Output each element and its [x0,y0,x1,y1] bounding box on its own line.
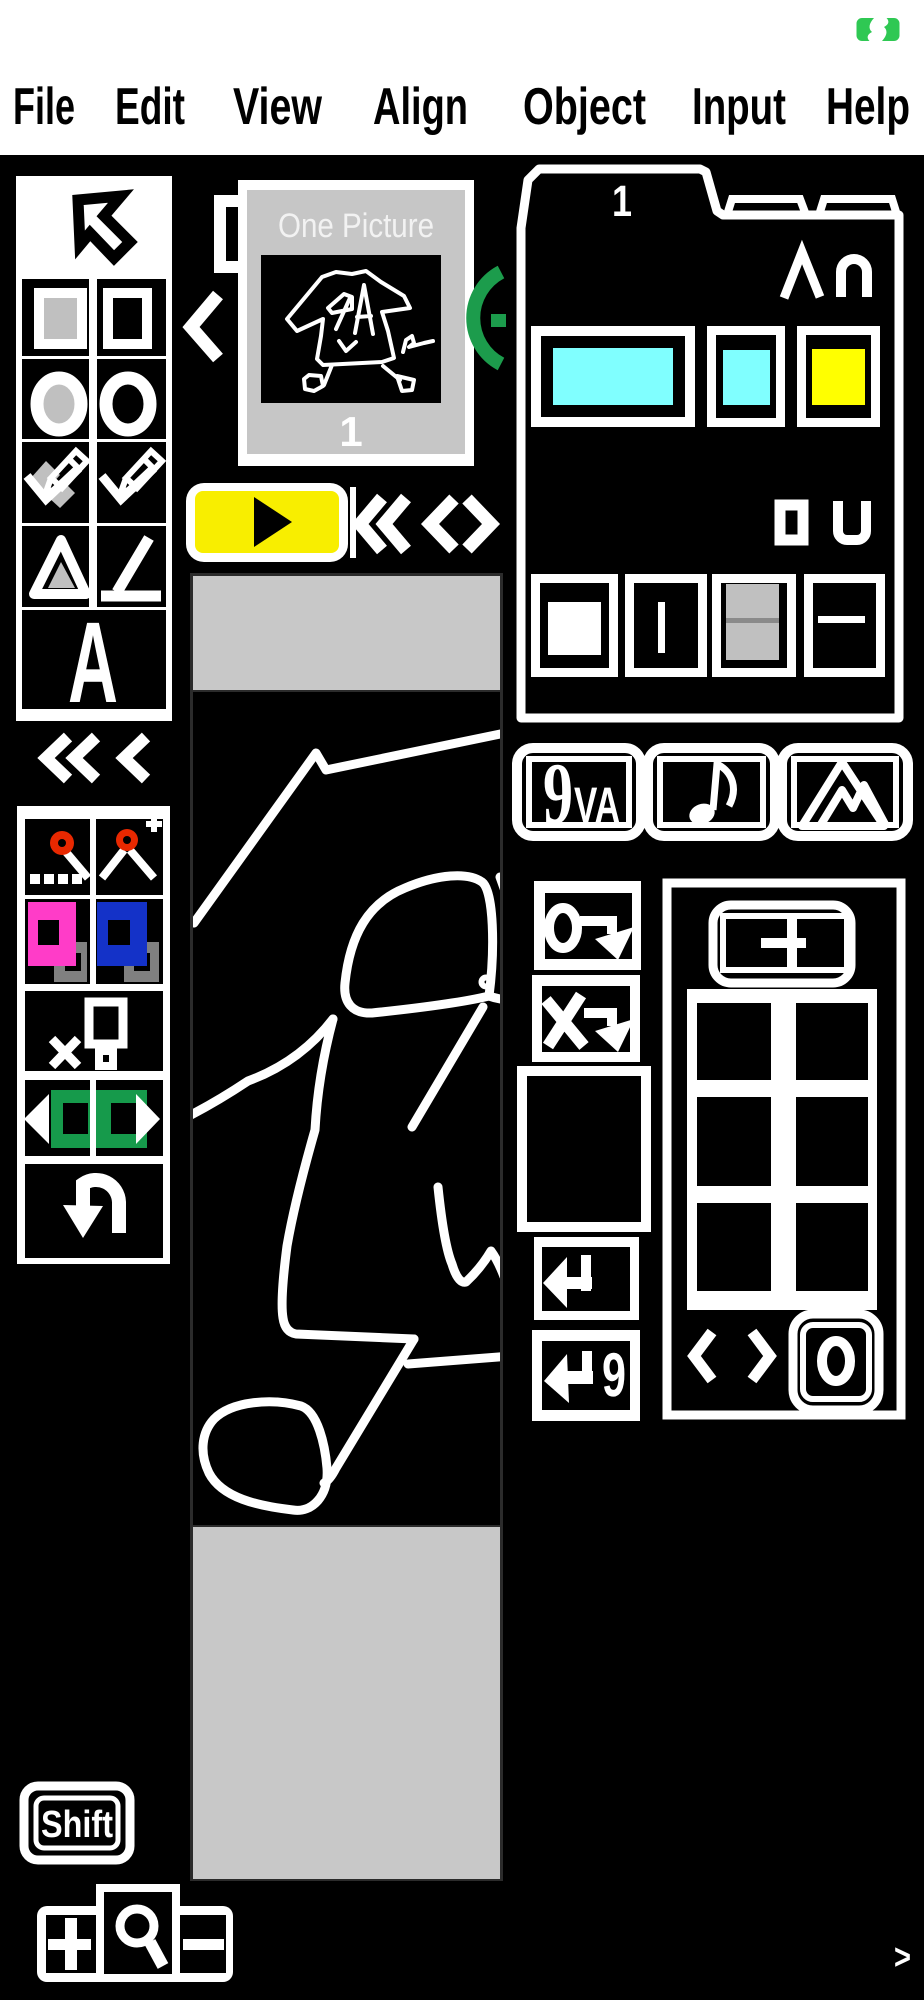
svg-text:Help: Help [826,78,910,136]
svg-text:>: > [894,1936,911,1977]
svg-text:VA: VA [574,777,620,833]
svg-text:One Picture: One Picture [278,207,434,245]
svg-text:Input: Input [692,78,786,136]
svg-text:Shift: Shift [41,1804,113,1846]
svg-text:1: 1 [339,408,362,455]
svg-text:1: 1 [612,177,632,226]
svg-text:A: A [68,599,118,727]
svg-text:View: View [233,78,322,136]
svg-text:9: 9 [543,746,573,843]
svg-text:Align: Align [373,78,468,136]
svg-text:File: File [13,78,75,136]
svg-text:Object: Object [523,78,646,136]
svg-text:9: 9 [602,1341,626,1410]
svg-text:Edit: Edit [115,78,185,136]
